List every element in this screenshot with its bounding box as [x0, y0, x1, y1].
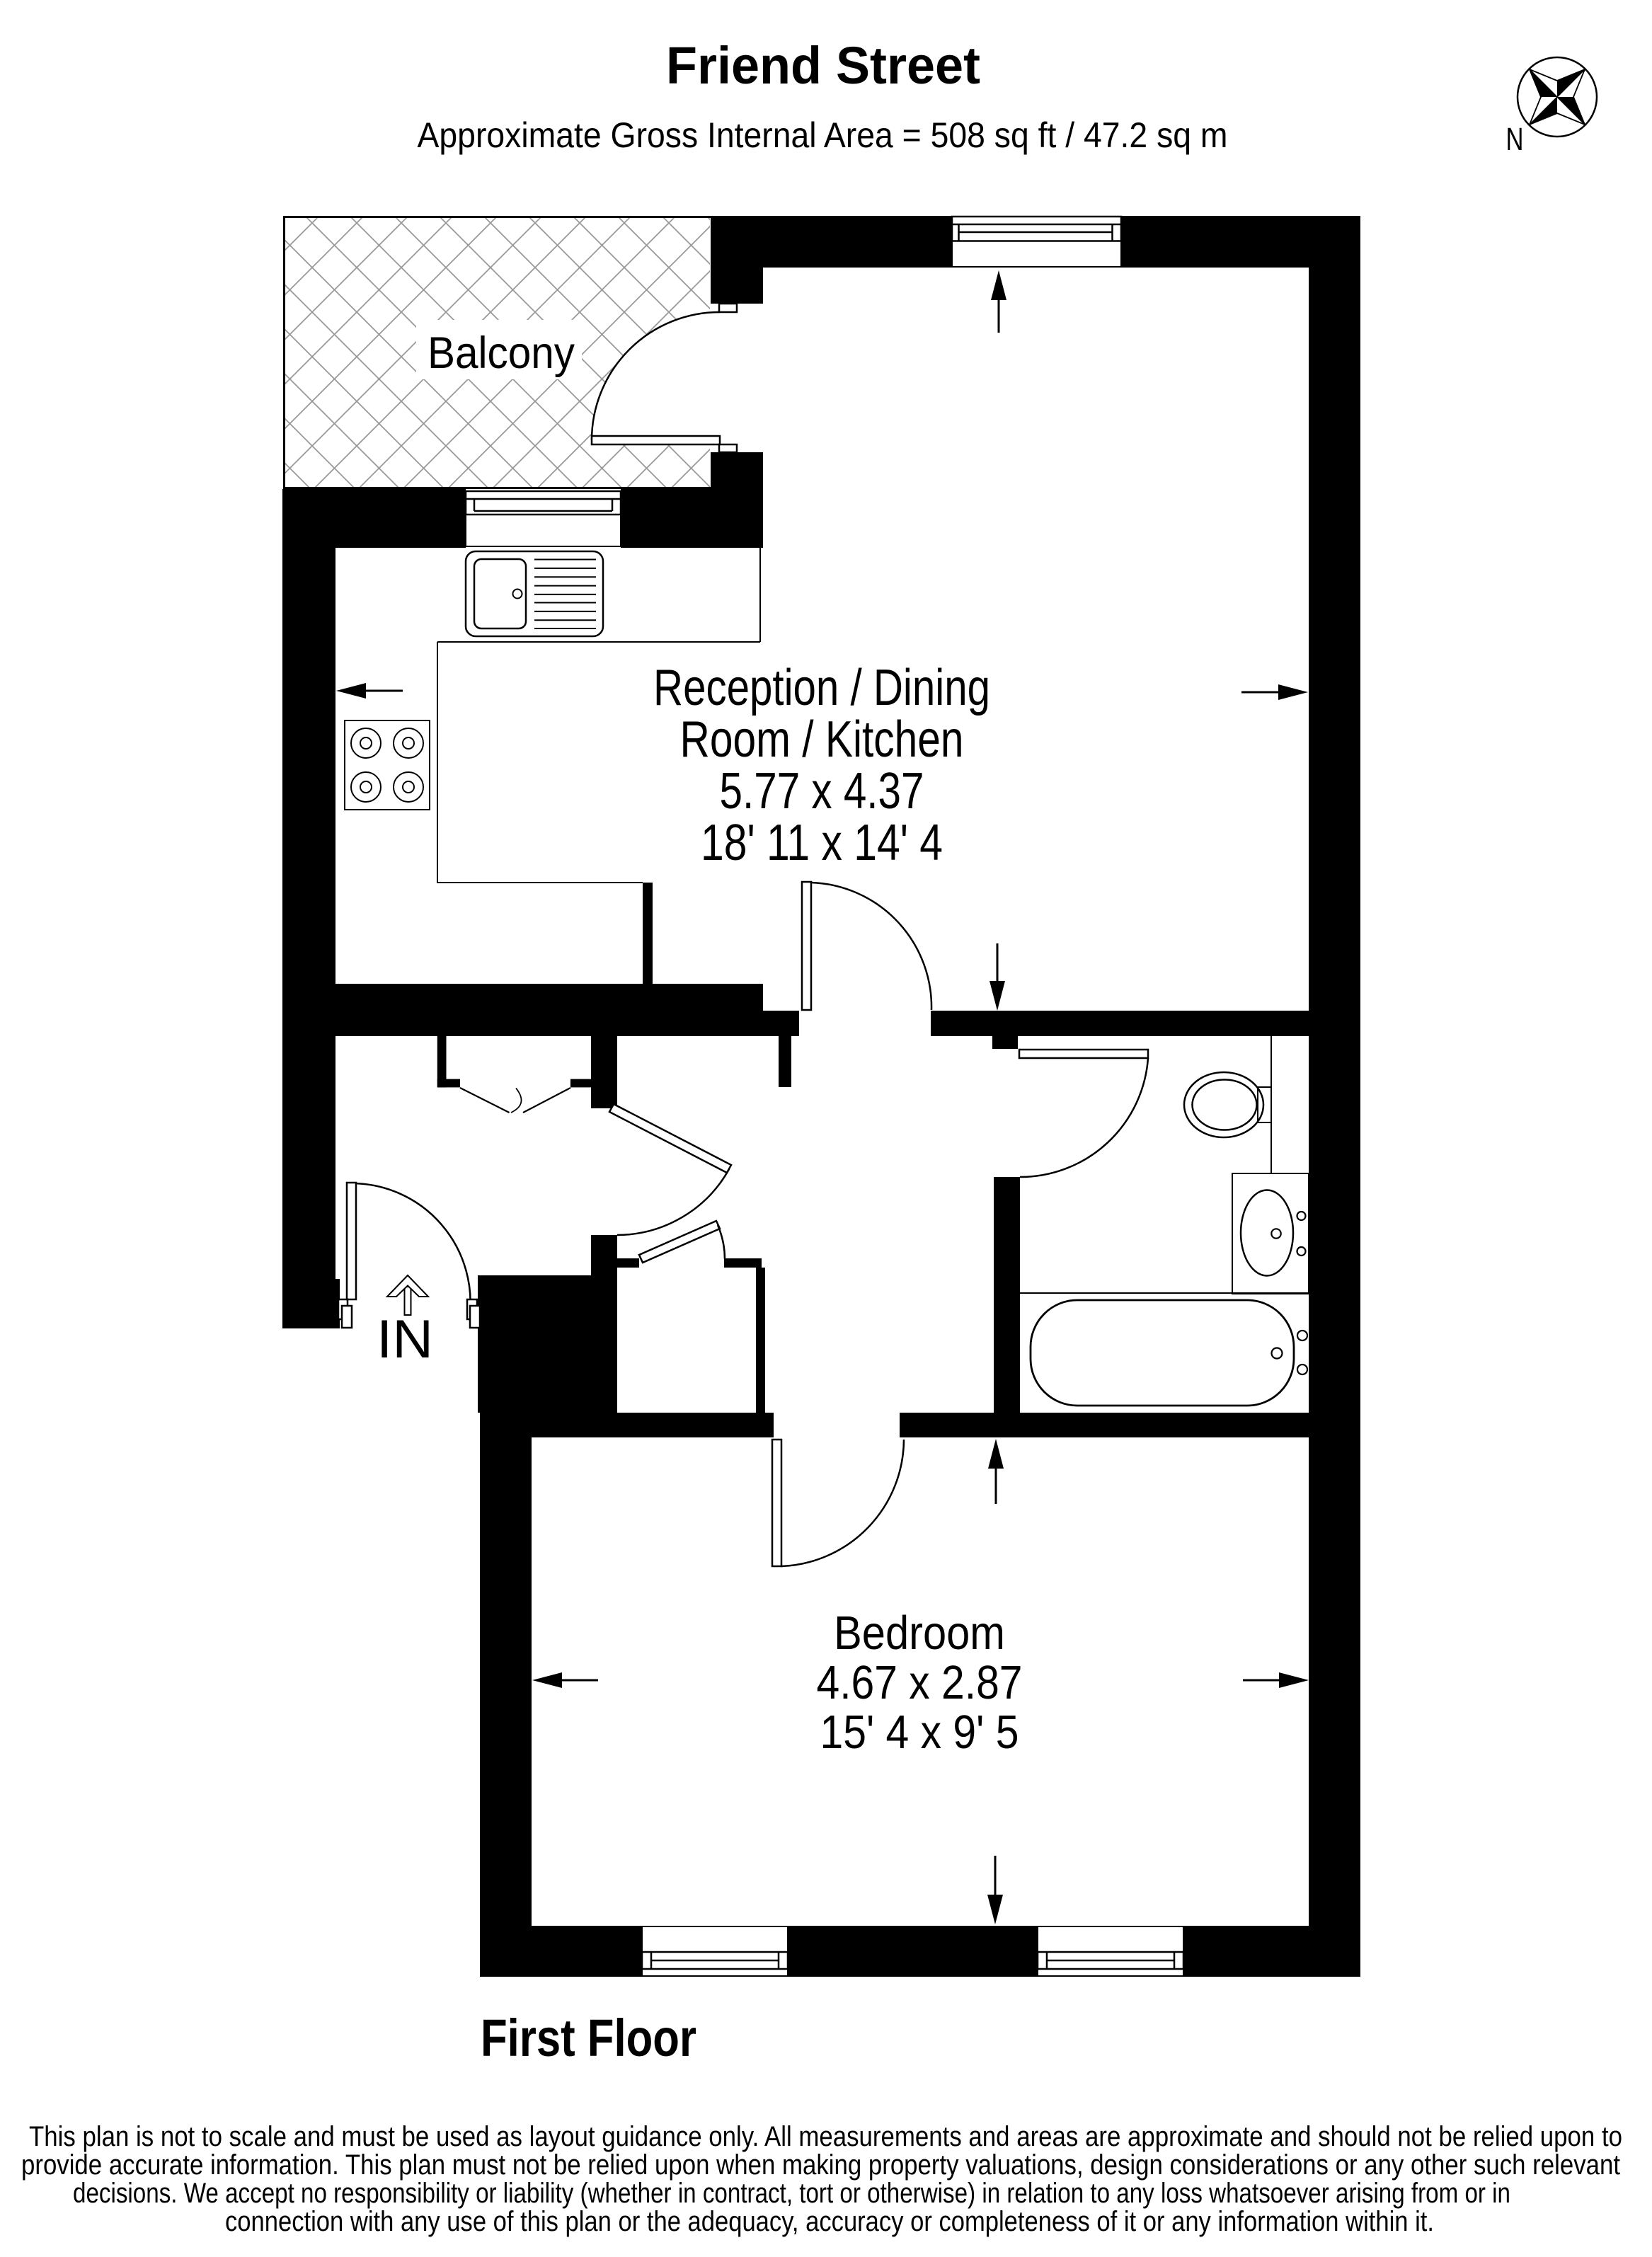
svg-text:Room / Kitchen: Room / Kitchen	[680, 711, 964, 768]
svg-text:Friend Street: Friend Street	[666, 36, 980, 95]
svg-text:connection with any use of thi: connection with any use of this plan or …	[225, 2206, 1434, 2237]
svg-text:4.67 x 2.87: 4.67 x 2.87	[817, 1656, 1023, 1709]
svg-text:N: N	[1506, 121, 1524, 157]
svg-text:18' 11 x 14' 4: 18' 11 x 14' 4	[701, 815, 943, 871]
svg-text:Approximate Gross Internal Are: Approximate Gross Internal Area = 508 sq…	[418, 115, 1228, 155]
svg-text:This plan is not to scale and: This plan is not to scale and must be us…	[29, 2121, 1622, 2152]
svg-text:decisions. We accept no respon: decisions. We accept no responsibility o…	[73, 2178, 1510, 2209]
svg-text:Balcony: Balcony	[428, 328, 575, 378]
svg-text:Bedroom: Bedroom	[834, 1607, 1005, 1660]
svg-text:First Floor: First Floor	[481, 2009, 696, 2067]
svg-text:IN: IN	[377, 1309, 433, 1369]
svg-text:15' 4 x 9' 5: 15' 4 x 9' 5	[820, 1706, 1019, 1759]
svg-text:5.77 x 4.37: 5.77 x 4.37	[720, 763, 924, 820]
svg-text:Reception / Dining: Reception / Dining	[653, 660, 990, 716]
svg-text:provide accurate information.: provide accurate information. This plan …	[21, 2149, 1620, 2181]
